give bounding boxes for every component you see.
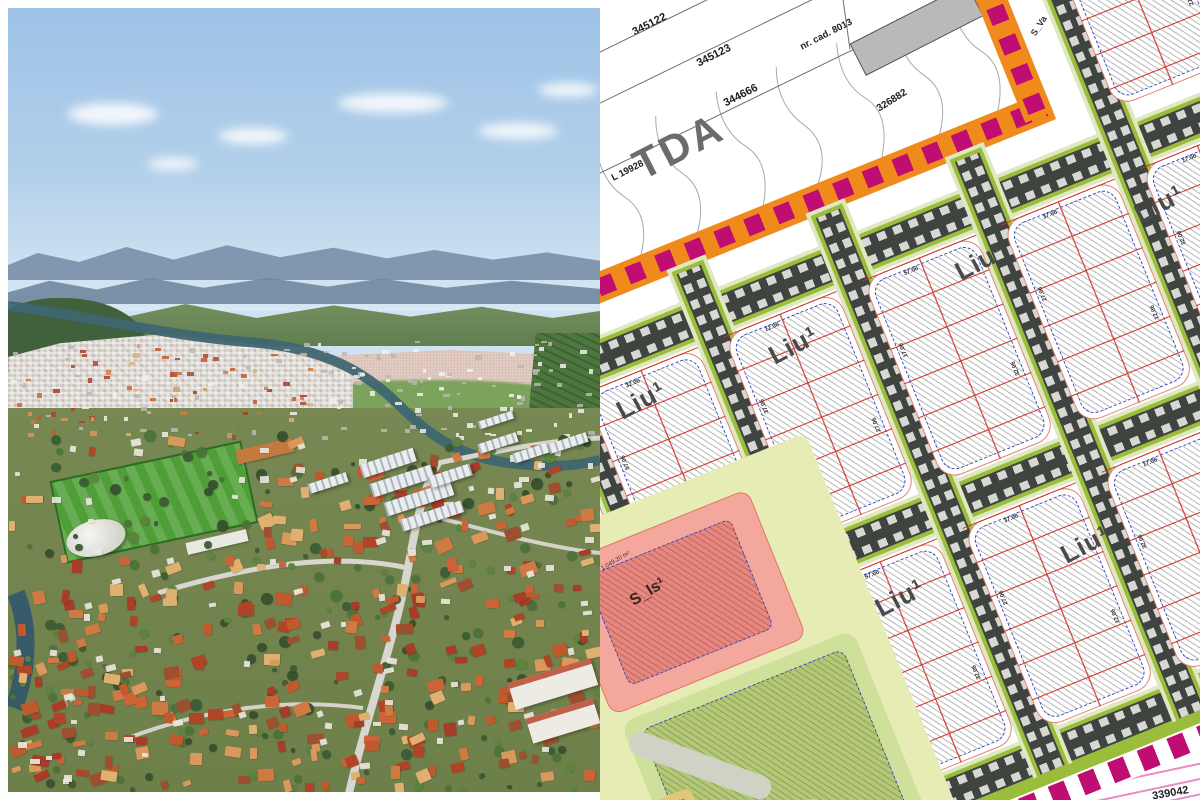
apartment-block bbox=[477, 432, 518, 454]
apartment-block bbox=[547, 432, 588, 454]
photo-white-frame bbox=[0, 0, 600, 800]
screenshot-collage: 345122345123344666nr. cad. 8013326882L 1… bbox=[0, 0, 1200, 800]
apartment-block bbox=[512, 443, 549, 464]
cadastral-map: 345122345123344666nr. cad. 8013326882L 1… bbox=[600, 0, 1200, 800]
aerial-photo bbox=[8, 8, 600, 792]
large-white-building bbox=[526, 698, 600, 743]
sva-road-label: S_Va bbox=[1029, 14, 1049, 38]
apartment-block bbox=[478, 411, 515, 430]
apartment-blocks-layer bbox=[8, 8, 600, 792]
apartment-block bbox=[307, 472, 348, 494]
plan-rotated-canvas: 345122345123344666nr. cad. 8013326882L 1… bbox=[600, 0, 1200, 800]
